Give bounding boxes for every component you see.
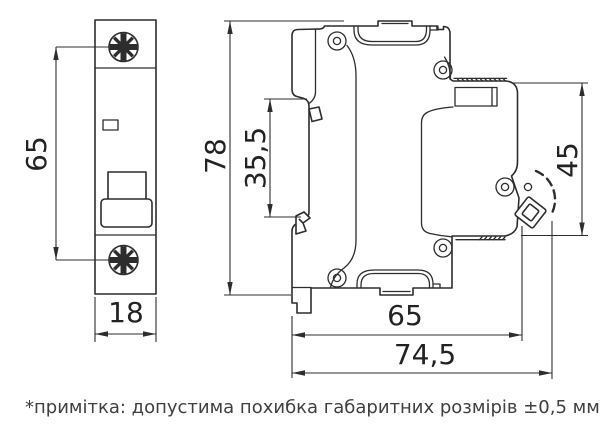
overall-height-label: 78 bbox=[199, 138, 232, 174]
overall-depth-label: 74,5 bbox=[394, 338, 456, 371]
front-height-label: 65 bbox=[20, 136, 53, 172]
front-width-label: 18 bbox=[108, 296, 144, 329]
dimension-face-height: 35,5 bbox=[239, 99, 307, 217]
tolerance-note: *примітка: допустима похибка габаритних … bbox=[25, 397, 600, 418]
rail-section-label: 45 bbox=[551, 142, 584, 178]
toggle-switch bbox=[101, 172, 152, 227]
face-height-label: 35,5 bbox=[239, 127, 272, 189]
technical-drawing-page: 65 18 78 35,5 45 65 74,5 *приміт bbox=[0, 0, 600, 439]
dimension-front-width: 18 bbox=[95, 296, 156, 342]
clip-pivot-hole bbox=[524, 183, 531, 190]
technical-drawing-svg: 65 18 78 35,5 45 65 74,5 *приміт bbox=[0, 0, 600, 439]
depth-label: 65 bbox=[387, 299, 423, 332]
din-flange-bottom bbox=[456, 237, 505, 240]
side-view bbox=[292, 21, 555, 313]
front-view bbox=[95, 20, 156, 294]
side-body bbox=[292, 21, 519, 313]
front-tab-upper bbox=[309, 107, 322, 122]
